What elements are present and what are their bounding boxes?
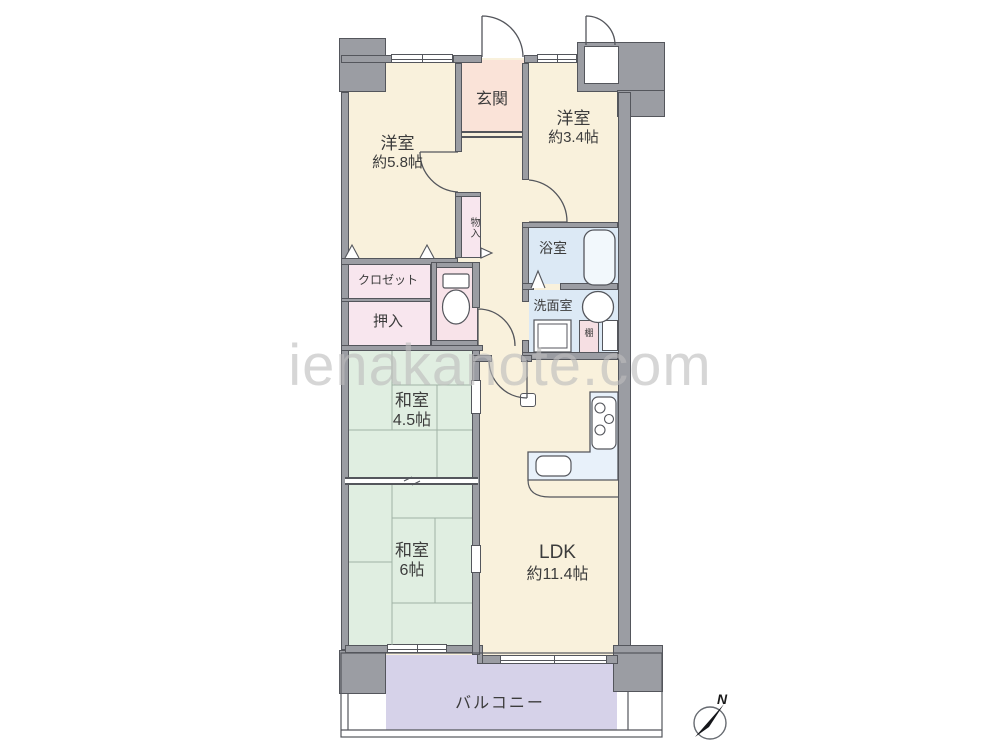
label-genkan: 玄関 <box>462 90 522 110</box>
wall <box>341 298 431 302</box>
wall <box>431 262 478 268</box>
compass-icon <box>694 704 726 739</box>
window <box>391 54 453 63</box>
balcony-floor <box>386 655 617 730</box>
window <box>387 644 447 653</box>
label-balcony: バルコニー <box>400 694 600 714</box>
watermark: ienakanote.com <box>0 332 1000 399</box>
window <box>537 54 577 63</box>
entrance-step <box>462 131 522 138</box>
label-ldk: LDK 約11.4帖 <box>480 541 635 585</box>
meterbox-door-icon <box>586 16 615 45</box>
label-washroom: 洗面室 <box>522 298 584 314</box>
wall <box>341 55 393 63</box>
meter-box <box>584 46 619 84</box>
entrance-door-icon <box>482 16 523 57</box>
wall <box>560 283 618 290</box>
wall <box>339 38 386 92</box>
label-western-58: 洋室 約5.8帖 <box>340 133 455 173</box>
wall <box>453 55 482 63</box>
label-monoire: 物入 <box>460 205 479 251</box>
wall <box>613 645 663 692</box>
wall <box>522 222 529 302</box>
wall <box>455 63 462 152</box>
label-closet: クロゼット <box>345 273 431 288</box>
label-western-34: 洋室 約3.4帖 <box>529 108 618 148</box>
label-bath: 浴室 <box>524 240 582 258</box>
window <box>500 655 607 664</box>
wall <box>455 192 481 197</box>
sliding-partition <box>345 477 478 485</box>
wall <box>472 262 480 308</box>
wall <box>339 650 386 694</box>
floor-plan: 玄関 洋室 約5.8帖 洋室 約3.4帖 物入 クロゼット 押入 浴室 洗面室 … <box>0 0 1000 750</box>
label-japanese-6: 和室 6帖 <box>352 540 472 581</box>
wall <box>522 63 529 180</box>
compass-north-label: N <box>717 691 727 707</box>
wall <box>522 222 618 228</box>
wall <box>522 283 534 290</box>
wall <box>345 645 389 653</box>
label-oshiire: 押入 <box>345 313 431 332</box>
